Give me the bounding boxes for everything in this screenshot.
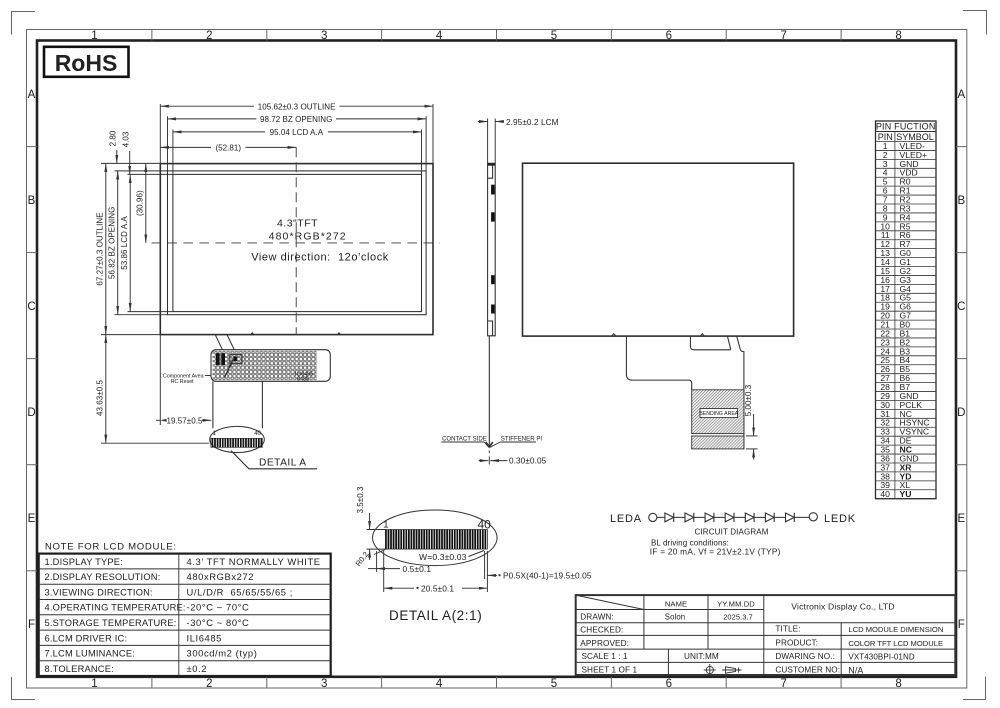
svg-text:1: 1 xyxy=(91,678,97,690)
svg-text:TITLE:: TITLE: xyxy=(775,625,800,634)
svg-text:1: 1 xyxy=(91,30,97,42)
svg-text:DETAIL A(2:1): DETAIL A(2:1) xyxy=(389,608,482,623)
svg-text:40: 40 xyxy=(880,489,890,499)
svg-text:67.27±0.3 OUTLINE: 67.27±0.3 OUTLINE xyxy=(96,212,105,285)
svg-text:YU: YU xyxy=(900,489,912,499)
svg-text:C: C xyxy=(27,301,35,313)
svg-text:CIRCUIT DIAGRAM: CIRCUIT DIAGRAM xyxy=(695,527,769,536)
svg-text:105.62±0.3 OUTLINE: 105.62±0.3 OUTLINE xyxy=(258,102,336,111)
svg-text:BENDING AREA: BENDING AREA xyxy=(699,411,738,417)
svg-text:1: 1 xyxy=(213,431,217,437)
svg-text:3.VIEWING DIRECTION:: 3.VIEWING DIRECTION: xyxy=(45,587,153,597)
svg-text:40: 40 xyxy=(478,518,492,532)
svg-text:Solon: Solon xyxy=(665,613,685,622)
svg-text:6485: 6485 xyxy=(297,377,309,383)
svg-text:1: 1 xyxy=(383,520,388,531)
svg-text:UNIT:MM: UNIT:MM xyxy=(684,652,719,661)
svg-text:SCALE 1 : 1: SCALE 1 : 1 xyxy=(582,652,629,661)
svg-text:2: 2 xyxy=(206,678,212,690)
svg-text:A: A xyxy=(28,89,36,101)
svg-text:U/L/D/R 65/65/55/65 ;: U/L/D/R 65/65/55/65 ; xyxy=(187,586,293,597)
svg-text:3.5±0.3: 3.5±0.3 xyxy=(356,486,365,513)
svg-text:2: 2 xyxy=(206,30,212,42)
svg-text:0.5±0.1: 0.5±0.1 xyxy=(403,564,432,574)
svg-text:4.3"TFT: 4.3"TFT xyxy=(277,217,318,229)
svg-text:LEDK: LEDK xyxy=(824,513,856,525)
svg-text:F: F xyxy=(958,619,965,631)
svg-text:480xRGBx272: 480xRGBx272 xyxy=(187,571,255,582)
svg-text:5.00±0.3: 5.00±0.3 xyxy=(744,384,753,416)
svg-text:5: 5 xyxy=(551,30,557,42)
svg-text:Victronix Display Co., LTD: Victronix Display Co., LTD xyxy=(791,602,894,612)
svg-text:7: 7 xyxy=(780,678,786,690)
svg-text:PIN FUCTION: PIN FUCTION xyxy=(876,122,936,132)
svg-text:DRAWN:: DRAWN: xyxy=(580,613,614,622)
svg-text:300cd/m2 (typ): 300cd/m2 (typ) xyxy=(187,648,258,659)
svg-text:5.STORAGE TEMPERATURE:: 5.STORAGE TEMPERATURE: xyxy=(45,618,177,628)
svg-text:5: 5 xyxy=(551,678,557,690)
svg-text:DETAIL A: DETAIL A xyxy=(259,458,307,469)
svg-text:E: E xyxy=(957,513,965,525)
svg-text:A: A xyxy=(957,89,965,101)
svg-text:±0.2: ±0.2 xyxy=(187,663,208,674)
svg-text:LCD MODULE DIMENSION: LCD MODULE DIMENSION xyxy=(848,625,943,634)
svg-text:0.30±0.05: 0.30±0.05 xyxy=(509,457,547,466)
svg-text:SHEET 1 OF 1: SHEET 1 OF 1 xyxy=(582,665,638,674)
svg-text:98.72 BZ OPENING: 98.72 BZ OPENING xyxy=(260,115,332,124)
svg-text:D: D xyxy=(957,407,965,419)
svg-text:53.86 LCD A.A: 53.86 LCD A.A xyxy=(120,216,129,270)
svg-text:4: 4 xyxy=(436,30,443,42)
svg-text:4.03: 4.03 xyxy=(121,131,130,147)
svg-text:NAME: NAME xyxy=(665,599,687,608)
svg-text:95.04 LCD A.A: 95.04 LCD A.A xyxy=(270,128,324,137)
svg-text:RC Reset: RC Reset xyxy=(171,379,194,385)
svg-text:ILI6485: ILI6485 xyxy=(187,632,222,643)
svg-text:NOTE FOR LCD MODULE:: NOTE FOR LCD MODULE: xyxy=(45,541,177,552)
svg-text:C: C xyxy=(957,301,965,313)
svg-text:1.DISPLAY TYPE:: 1.DISPLAY TYPE: xyxy=(45,557,123,567)
svg-text:4.OPERATING TEMPERATURE:: 4.OPERATING TEMPERATURE: xyxy=(45,603,186,613)
svg-text:YY.MM.DD: YY.MM.DD xyxy=(717,599,755,608)
svg-text:2.DISPLAY RESOLUTION:: 2.DISPLAY RESOLUTION: xyxy=(45,572,161,582)
svg-text:2.95±0.2 LCM: 2.95±0.2 LCM xyxy=(506,118,559,127)
svg-text:DWARING NO.:: DWARING NO.: xyxy=(775,652,835,661)
svg-text:480*RGB*272: 480*RGB*272 xyxy=(269,231,347,243)
svg-text:8: 8 xyxy=(895,30,901,42)
svg-text:8.TOLERANCE:: 8.TOLERANCE: xyxy=(45,664,114,674)
svg-text:CUSTOMER NO:: CUSTOMER NO: xyxy=(775,665,840,674)
svg-text:RoHS: RoHS xyxy=(55,50,118,76)
svg-text:View direction: 12o’clock: View direction: 12o’clock xyxy=(251,251,389,263)
svg-text:4: 4 xyxy=(436,678,443,690)
svg-text:W=0.3±0.03: W=0.3±0.03 xyxy=(419,552,467,562)
svg-text:-20°C ~ 70°C: -20°C ~ 70°C xyxy=(187,602,250,613)
svg-text:20.5±0.1: 20.5±0.1 xyxy=(421,583,454,593)
svg-text:IF = 20 mA, Vf = 21V±2.1V (TYP: IF = 20 mA, Vf = 21V±2.1V (TYP) xyxy=(650,547,781,557)
svg-text:R0.2: R0.2 xyxy=(354,550,371,568)
svg-text:7.LCM LUMINANCE:: 7.LCM LUMINANCE: xyxy=(45,649,136,659)
svg-text:PRODUCT:: PRODUCT: xyxy=(775,639,818,648)
svg-text:19.57±0.5: 19.57±0.5 xyxy=(167,416,203,425)
svg-text:P0.5X(40-1)=19.5±0.05: P0.5X(40-1)=19.5±0.05 xyxy=(503,571,592,581)
svg-text:43.63±0.5: 43.63±0.5 xyxy=(95,380,104,416)
svg-text:APPROVED:: APPROVED: xyxy=(580,639,629,648)
svg-text:N/A: N/A xyxy=(848,665,863,675)
svg-text:2.80: 2.80 xyxy=(108,130,117,146)
svg-text:LEDA: LEDA xyxy=(610,513,642,525)
svg-text:6.LCM DRIVER IC:: 6.LCM DRIVER IC: xyxy=(45,633,128,643)
svg-text:CHECKED:: CHECKED: xyxy=(580,626,623,635)
svg-text:-30°C ~ 80°C: -30°C ~ 80°C xyxy=(187,617,250,628)
svg-text:(30.96): (30.96) xyxy=(135,190,144,216)
svg-text:B: B xyxy=(957,195,965,207)
svg-text:4.3’ TFT NORMALLY WHITE: 4.3’ TFT NORMALLY WHITE xyxy=(187,556,321,567)
svg-text:D: D xyxy=(27,407,35,419)
svg-text:40: 40 xyxy=(254,431,261,437)
svg-text:7: 7 xyxy=(780,30,786,42)
svg-text:F: F xyxy=(28,619,35,631)
svg-text:6: 6 xyxy=(666,30,672,42)
svg-text:E: E xyxy=(28,513,36,525)
svg-text:COLOR TFT LCD MODULE: COLOR TFT LCD MODULE xyxy=(848,639,943,648)
svg-text:VXT430BPI-01ND: VXT430BPI-01ND xyxy=(848,652,914,661)
svg-text:3: 3 xyxy=(321,678,327,690)
svg-text:2025.3.7: 2025.3.7 xyxy=(723,613,753,622)
svg-text:8: 8 xyxy=(895,678,901,690)
svg-text:(52.81): (52.81) xyxy=(215,143,241,152)
svg-text:3: 3 xyxy=(321,30,327,42)
svg-text:56.82 BZ OPENING: 56.82 BZ OPENING xyxy=(107,207,116,279)
svg-text:B: B xyxy=(28,195,36,207)
svg-text:6: 6 xyxy=(666,678,672,690)
